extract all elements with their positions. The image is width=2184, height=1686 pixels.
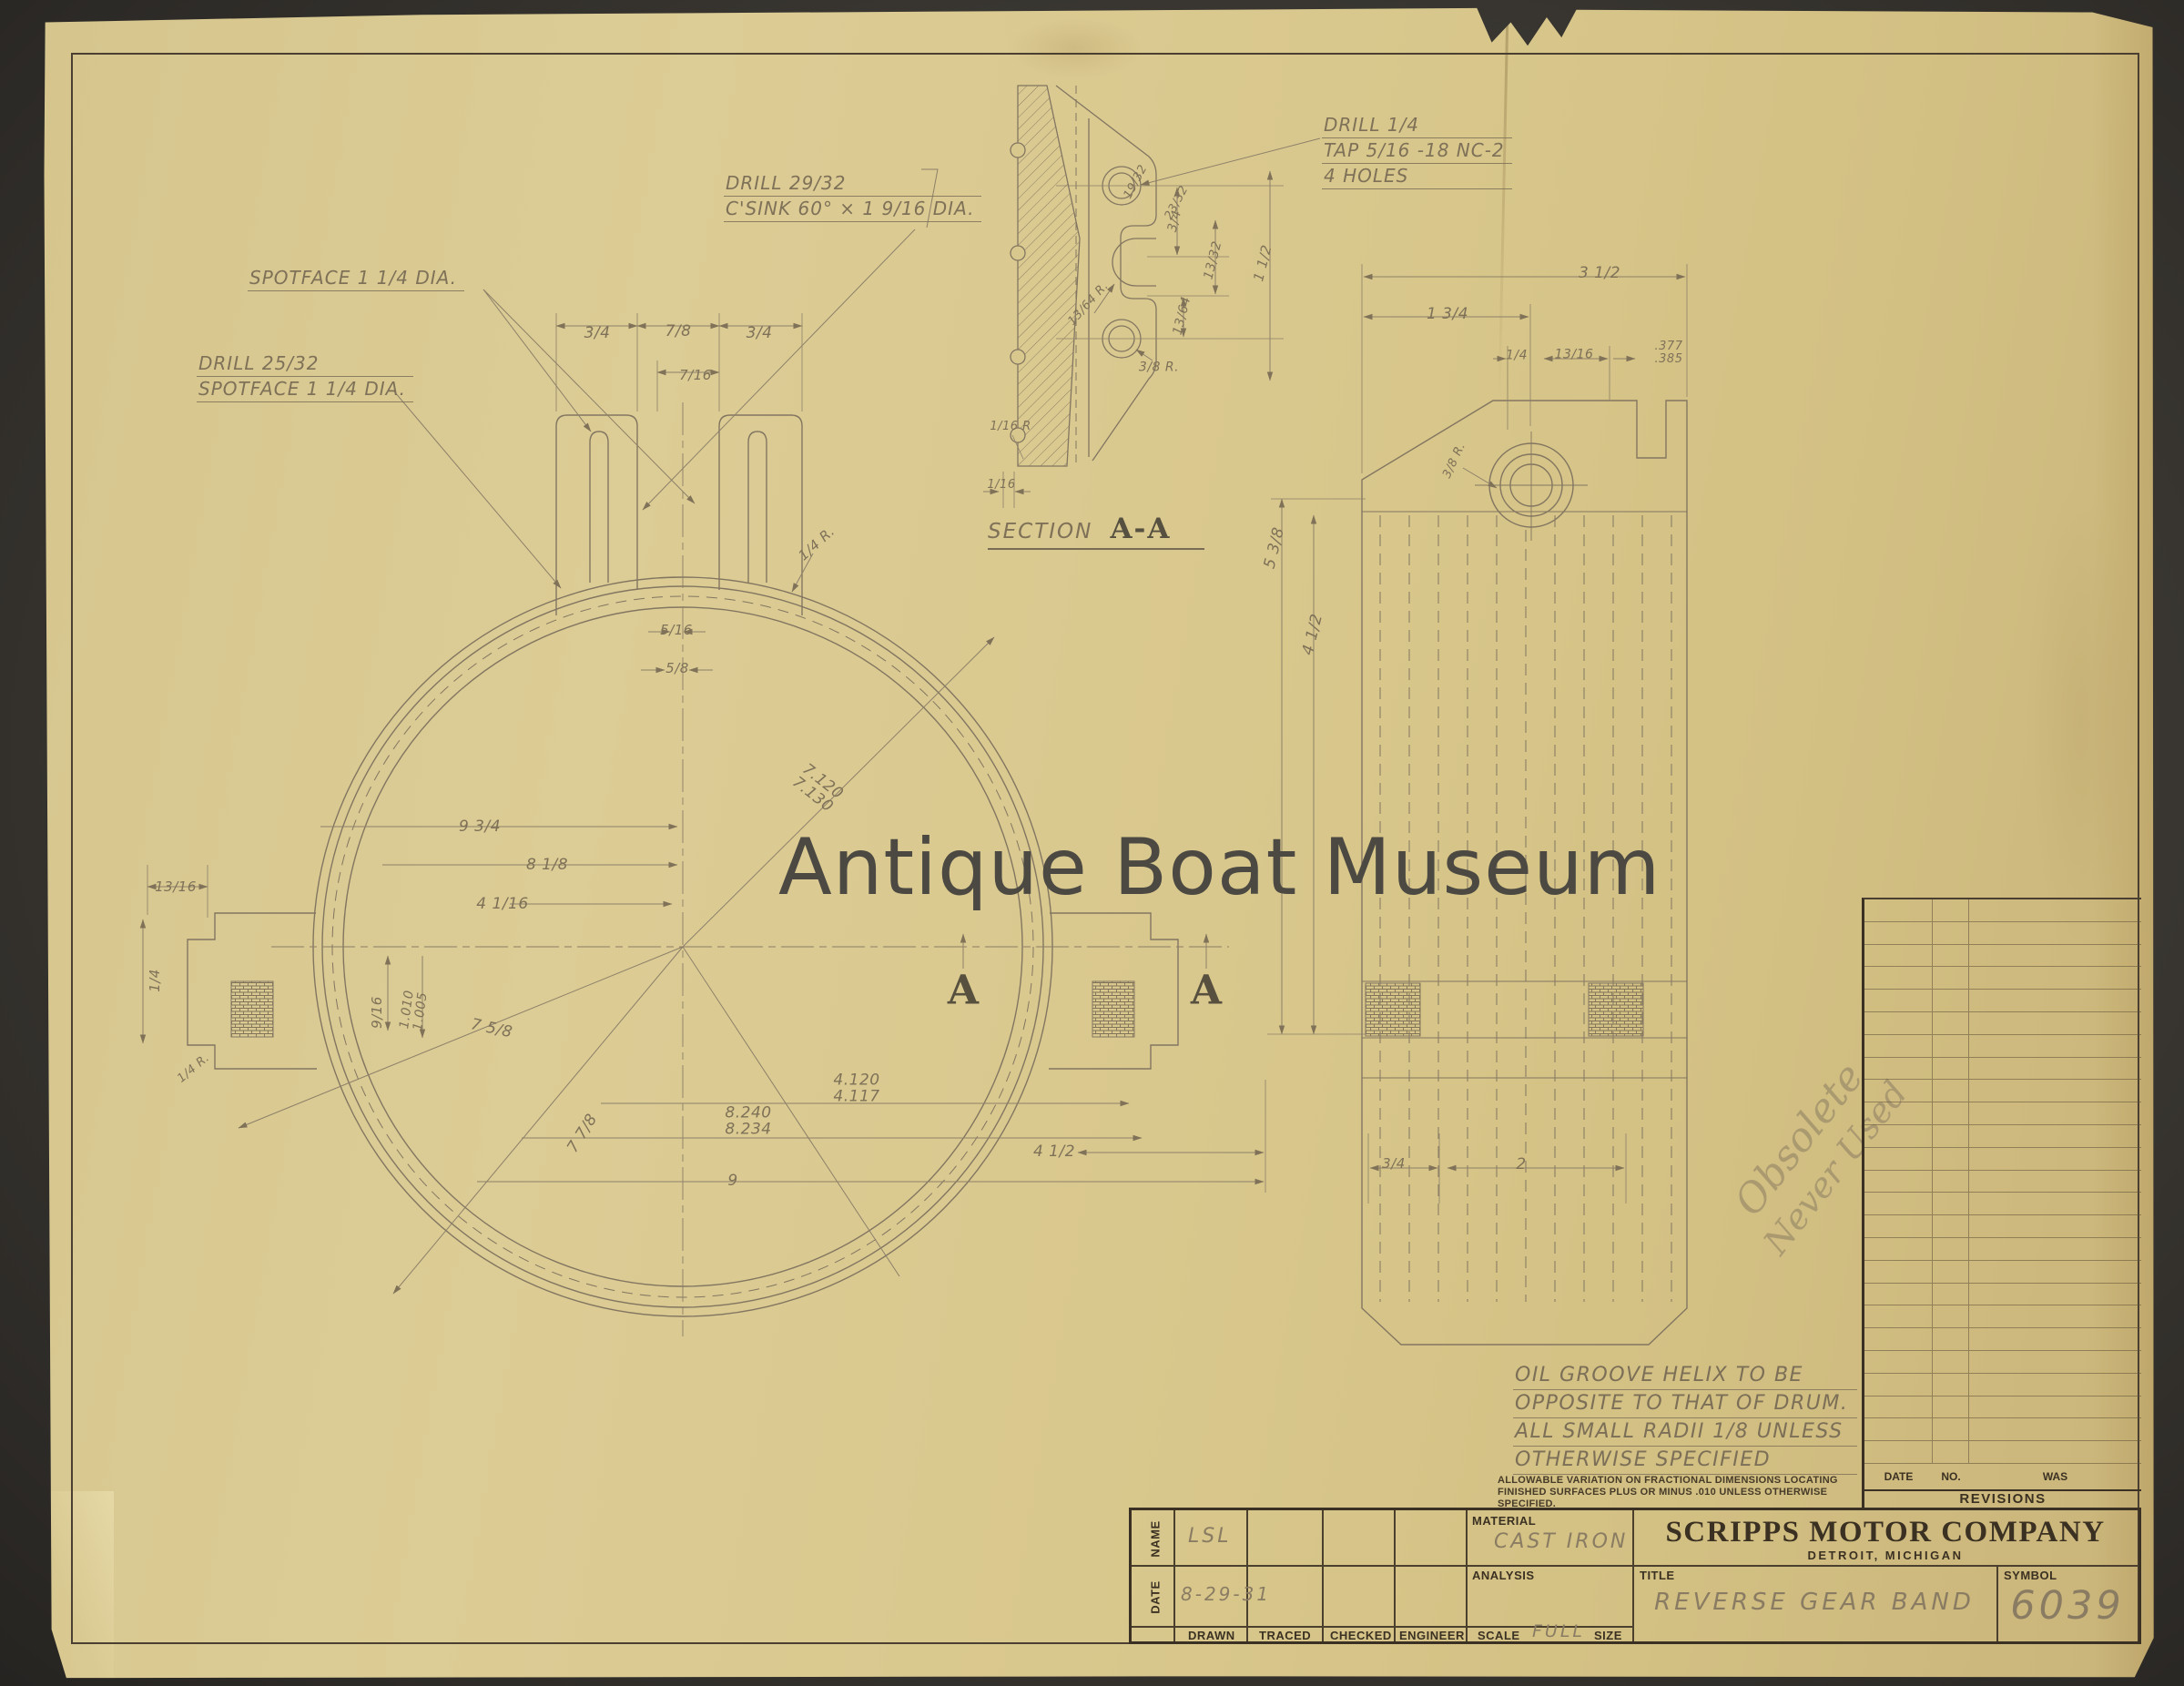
revision-cell bbox=[1933, 1035, 1969, 1057]
revision-cell bbox=[1933, 1328, 1969, 1350]
callout-text: DRILL 1/4 bbox=[1322, 113, 1512, 138]
dimension-label: 13/16 bbox=[155, 879, 197, 894]
note-line: OIL GROOVE HELIX TO BE bbox=[1513, 1362, 1857, 1390]
revision-cell bbox=[1933, 1397, 1969, 1418]
engineer-label: ENGINEER bbox=[1399, 1629, 1465, 1642]
revision-row bbox=[1864, 945, 2141, 968]
note-line: OPPOSITE TO THAT OF DRUM. bbox=[1513, 1390, 1857, 1418]
fine-print-line: ALLOWABLE VARIATION ON FRACTIONAL DIMENS… bbox=[1498, 1475, 1862, 1487]
revision-row bbox=[1864, 1351, 2141, 1374]
analysis-label: ANALYSIS bbox=[1472, 1569, 1535, 1582]
revision-cell bbox=[1864, 1328, 1933, 1350]
material-label: MATERIAL bbox=[1472, 1514, 1536, 1528]
revision-cell bbox=[1933, 945, 1969, 967]
revision-cell bbox=[1933, 1261, 1969, 1283]
dimension-label: 1.010 1.005 bbox=[398, 990, 431, 1031]
revision-cell bbox=[1969, 1351, 2141, 1373]
revision-cell bbox=[1864, 1080, 1933, 1102]
revision-row bbox=[1864, 899, 2141, 922]
material-value: CAST IRON bbox=[1494, 1530, 1628, 1553]
revision-cell bbox=[1864, 1284, 1933, 1305]
revision-cell bbox=[1864, 1035, 1933, 1057]
front-view-dimension-lines bbox=[143, 169, 1265, 1294]
revision-row bbox=[1864, 1102, 2141, 1125]
section-aa-view bbox=[1011, 86, 1156, 466]
revision-cell bbox=[1933, 1193, 1969, 1214]
revision-row bbox=[1864, 1418, 2141, 1441]
company-name: SCRIPPS MOTOR COMPANY bbox=[1635, 1516, 2136, 1549]
dimension-label: 1/4 bbox=[1506, 349, 1528, 362]
revision-cell bbox=[1969, 922, 2141, 944]
dimension-label: 8 1/8 bbox=[526, 857, 568, 873]
revision-cell bbox=[1969, 1397, 2141, 1418]
revision-cell bbox=[1969, 1125, 2141, 1147]
revision-cell bbox=[1969, 1261, 2141, 1283]
section-label-name: A-A bbox=[1110, 513, 1171, 545]
name-value: LSL bbox=[1188, 1525, 1231, 1548]
name-row-label: NAME bbox=[1149, 1520, 1163, 1557]
dimension-label: 9 bbox=[727, 1173, 737, 1189]
revision-cell bbox=[1933, 1215, 1969, 1237]
revision-cell bbox=[1864, 1305, 1933, 1327]
fine-print-line: FINISHED SURFACES PLUS OR MINUS .010 UNL… bbox=[1498, 1487, 1862, 1498]
dimension-label: 9/16 bbox=[370, 996, 384, 1029]
revision-cell bbox=[1933, 1351, 1969, 1373]
callout-drill-csink: DRILL 29/32 C'SINK 60° × 1 9/16 DIA. bbox=[724, 171, 981, 222]
revision-row bbox=[1864, 1441, 2141, 1464]
revision-cell bbox=[1864, 967, 1933, 989]
drawn-label: DRAWN bbox=[1188, 1629, 1235, 1642]
divider-line bbox=[1246, 1510, 1248, 1641]
revision-cell bbox=[1864, 1215, 1933, 1237]
revision-cell bbox=[1969, 967, 2141, 989]
revision-row bbox=[1864, 1080, 2141, 1102]
revision-cell bbox=[1969, 1012, 2141, 1034]
dimension-label: 3/4 bbox=[1382, 1156, 1406, 1171]
revision-cell bbox=[1864, 1102, 1933, 1124]
dimension-label: 1 3/4 bbox=[1427, 306, 1468, 322]
revision-cell bbox=[1864, 1171, 1933, 1193]
callout-text: DRILL 29/32 bbox=[724, 171, 981, 197]
revision-cell bbox=[1969, 1284, 2141, 1305]
revision-cell bbox=[1864, 1012, 1933, 1034]
revision-cell bbox=[1933, 1125, 1969, 1147]
general-notes: OIL GROOVE HELIX TO BE OPPOSITE TO THAT … bbox=[1513, 1362, 1857, 1475]
callout-text: SPOTFACE 1 1/4 DIA. bbox=[197, 377, 413, 402]
revision-cell bbox=[1969, 1374, 2141, 1396]
revision-row bbox=[1864, 1328, 2141, 1351]
revision-cell bbox=[1864, 1058, 1933, 1080]
dimension-label: 4.120 4.117 bbox=[833, 1072, 879, 1106]
scale-value: FULL bbox=[1532, 1621, 1585, 1641]
dimension-label: 8.240 8.234 bbox=[725, 1105, 771, 1139]
revision-cell bbox=[1969, 1102, 2141, 1124]
section-label-prefix: SECTION bbox=[988, 520, 1092, 543]
dimension-label: 3 1/2 bbox=[1579, 265, 1620, 281]
side-view-dimension-lines bbox=[1267, 264, 1687, 1204]
revision-row bbox=[1864, 967, 2141, 990]
drawing-title: REVERSE GEAR BAND bbox=[1641, 1589, 1987, 1616]
revision-cell bbox=[1933, 899, 1969, 921]
revision-cell bbox=[1969, 945, 2141, 967]
revision-row bbox=[1864, 990, 2141, 1012]
revision-row bbox=[1864, 1012, 2141, 1035]
dimension-label: 2 bbox=[1516, 1156, 1526, 1173]
revision-cell bbox=[1933, 967, 1969, 989]
dimension-label: 1/16 R bbox=[990, 421, 1031, 433]
revision-row bbox=[1864, 922, 2141, 945]
callout-text: 4 HOLES bbox=[1322, 164, 1512, 189]
revision-cell bbox=[1864, 899, 1933, 921]
revision-cell bbox=[1933, 1374, 1969, 1396]
revision-row bbox=[1864, 1058, 2141, 1081]
revision-cell bbox=[1864, 1125, 1933, 1147]
callout-spotface: SPOTFACE 1 1/4 DIA. bbox=[248, 266, 464, 291]
company-city: DETROIT, MICHIGAN bbox=[1635, 1549, 2136, 1562]
revisions-col-date: DATE bbox=[1864, 1470, 1933, 1483]
dimension-label: 4 1/2 bbox=[1033, 1143, 1075, 1160]
revision-cell bbox=[1864, 1261, 1933, 1283]
revision-cell bbox=[1969, 899, 2141, 921]
revision-row bbox=[1864, 1261, 2141, 1284]
traced-label: TRACED bbox=[1259, 1629, 1311, 1642]
revision-cell bbox=[1864, 1397, 1933, 1418]
revision-cell bbox=[1969, 1215, 2141, 1237]
callout-text: C'SINK 60° × 1 9/16 DIA. bbox=[724, 197, 981, 222]
dimension-label: 5/8 bbox=[665, 661, 689, 675]
note-line: OTHERWISE SPECIFIED bbox=[1513, 1447, 1857, 1475]
revision-cell bbox=[1969, 1193, 2141, 1214]
section-arrow-letter: A bbox=[948, 968, 979, 1014]
dimension-label: 9 3/4 bbox=[459, 818, 501, 835]
revision-cell bbox=[1864, 922, 1933, 944]
dimension-label: 3/4 bbox=[584, 325, 611, 341]
revision-cell bbox=[1864, 1148, 1933, 1170]
revision-cell bbox=[1864, 1351, 1933, 1373]
divider-line bbox=[1996, 1565, 1998, 1641]
revision-cell bbox=[1864, 1418, 1933, 1440]
symbol-label: SYMBOL bbox=[2004, 1569, 2057, 1582]
revision-cell bbox=[1864, 1193, 1933, 1214]
revision-cell bbox=[1864, 945, 1933, 967]
checked-label: CHECKED bbox=[1330, 1629, 1392, 1642]
dimension-label: .377 .385 bbox=[1655, 340, 1683, 366]
revision-row bbox=[1864, 1238, 2141, 1261]
dimension-label: 5/16 bbox=[660, 623, 693, 637]
revision-cell bbox=[1933, 1058, 1969, 1080]
revision-row bbox=[1864, 1374, 2141, 1397]
revision-cell bbox=[1933, 1080, 1969, 1102]
dimension-label: 13/16 bbox=[1555, 348, 1594, 361]
callout-text: DRILL 25/32 bbox=[197, 351, 413, 377]
revision-cell bbox=[1969, 1418, 2141, 1440]
revisions-table: DATE NO. WAS REVISIONS bbox=[1862, 898, 2141, 1508]
revision-cell bbox=[1969, 1171, 2141, 1193]
title-label: TITLE bbox=[1640, 1569, 1675, 1582]
watermark-text: Antique Boat Museum bbox=[778, 822, 1661, 913]
revision-cell bbox=[1969, 1441, 2141, 1463]
revision-row bbox=[1864, 1125, 2141, 1148]
drawing-number: 6039 bbox=[2004, 1583, 2131, 1629]
divider-line bbox=[1132, 1565, 2138, 1567]
revisions-col-was: WAS bbox=[1969, 1470, 2141, 1483]
revision-cell bbox=[1969, 1238, 2141, 1260]
revision-cell bbox=[1933, 922, 1969, 944]
revision-cell bbox=[1969, 1328, 2141, 1350]
revision-cell bbox=[1969, 1035, 2141, 1057]
divider-line bbox=[1173, 1510, 1175, 1641]
dimension-label: 1/4 bbox=[147, 969, 162, 992]
callout-text: SPOTFACE 1 1/4 DIA. bbox=[248, 266, 464, 291]
revision-cell bbox=[1933, 1171, 1969, 1193]
revision-row bbox=[1864, 1215, 2141, 1238]
revision-cell bbox=[1969, 1058, 2141, 1080]
divider-line bbox=[1466, 1510, 1468, 1641]
revisions-header-row: DATE NO. WAS bbox=[1864, 1464, 2141, 1489]
dimension-label: 7/16 bbox=[679, 368, 712, 382]
revision-cell bbox=[1933, 1284, 1969, 1305]
revision-row bbox=[1864, 1193, 2141, 1215]
scale-label: SCALE bbox=[1478, 1629, 1520, 1642]
revision-cell bbox=[1933, 1305, 1969, 1327]
revisions-title: REVISIONS bbox=[1864, 1489, 2141, 1508]
revision-cell bbox=[1933, 1102, 1969, 1124]
revision-row bbox=[1864, 1171, 2141, 1193]
revision-cell bbox=[1933, 990, 1969, 1011]
dimension-label: 7/8 bbox=[665, 323, 692, 340]
revision-cell bbox=[1969, 990, 2141, 1011]
revision-cell bbox=[1933, 1012, 1969, 1034]
callout-drill-tap: DRILL 1/4 TAP 5/16 -18 NC-2 4 HOLES bbox=[1322, 113, 1512, 189]
revision-cell bbox=[1933, 1441, 1969, 1463]
revision-rows bbox=[1864, 899, 2141, 1464]
dimension-label: 3/4 bbox=[747, 325, 773, 341]
revision-cell bbox=[1969, 1305, 2141, 1327]
date-value: 8-29-31 bbox=[1181, 1583, 1271, 1605]
revision-cell bbox=[1864, 990, 1933, 1011]
revision-cell bbox=[1864, 1441, 1933, 1463]
note-line: ALL SMALL RADII 1/8 UNLESS bbox=[1513, 1418, 1857, 1447]
tolerance-fine-print: ALLOWABLE VARIATION ON FRACTIONAL DIMENS… bbox=[1498, 1475, 1862, 1510]
revision-cell bbox=[1933, 1418, 1969, 1440]
revision-row bbox=[1864, 1397, 2141, 1419]
photographed-blueprint-scene: DRILL 29/32 C'SINK 60° × 1 9/16 DIA. SPO… bbox=[0, 0, 2184, 1686]
dimension-label: 1/16 bbox=[987, 479, 1015, 492]
revision-row bbox=[1864, 1148, 2141, 1171]
revision-cell bbox=[1969, 1080, 2141, 1102]
divider-line bbox=[1394, 1510, 1396, 1641]
title-block: NAME DATE LSL 8-29-31 DRAWN TRACED CHECK… bbox=[1129, 1508, 2141, 1644]
date-row-label: DATE bbox=[1149, 1580, 1163, 1613]
dimension-label: 3/8 R. bbox=[1139, 361, 1179, 374]
callout-drill-spotface: DRILL 25/32 SPOTFACE 1 1/4 DIA. bbox=[197, 351, 413, 402]
section-arrow-letter: A bbox=[1191, 968, 1222, 1014]
revision-cell bbox=[1864, 1238, 1933, 1260]
revision-cell bbox=[1933, 1148, 1969, 1170]
revision-row bbox=[1864, 1035, 2141, 1058]
revision-cell bbox=[1864, 1374, 1933, 1396]
revision-row bbox=[1864, 1284, 2141, 1306]
revision-cell bbox=[1969, 1148, 2141, 1170]
callout-text: TAP 5/16 -18 NC-2 bbox=[1322, 138, 1512, 164]
size-label: SIZE bbox=[1594, 1629, 1622, 1642]
divider-line bbox=[1632, 1510, 1634, 1641]
revisions-col-no: NO. bbox=[1933, 1470, 1969, 1483]
revision-row bbox=[1864, 1305, 2141, 1328]
revision-cell bbox=[1933, 1238, 1969, 1260]
section-aa-label: SECTION A-A bbox=[988, 513, 1204, 550]
divider-line bbox=[1322, 1510, 1324, 1641]
dimension-label: 4 1/16 bbox=[476, 896, 528, 912]
